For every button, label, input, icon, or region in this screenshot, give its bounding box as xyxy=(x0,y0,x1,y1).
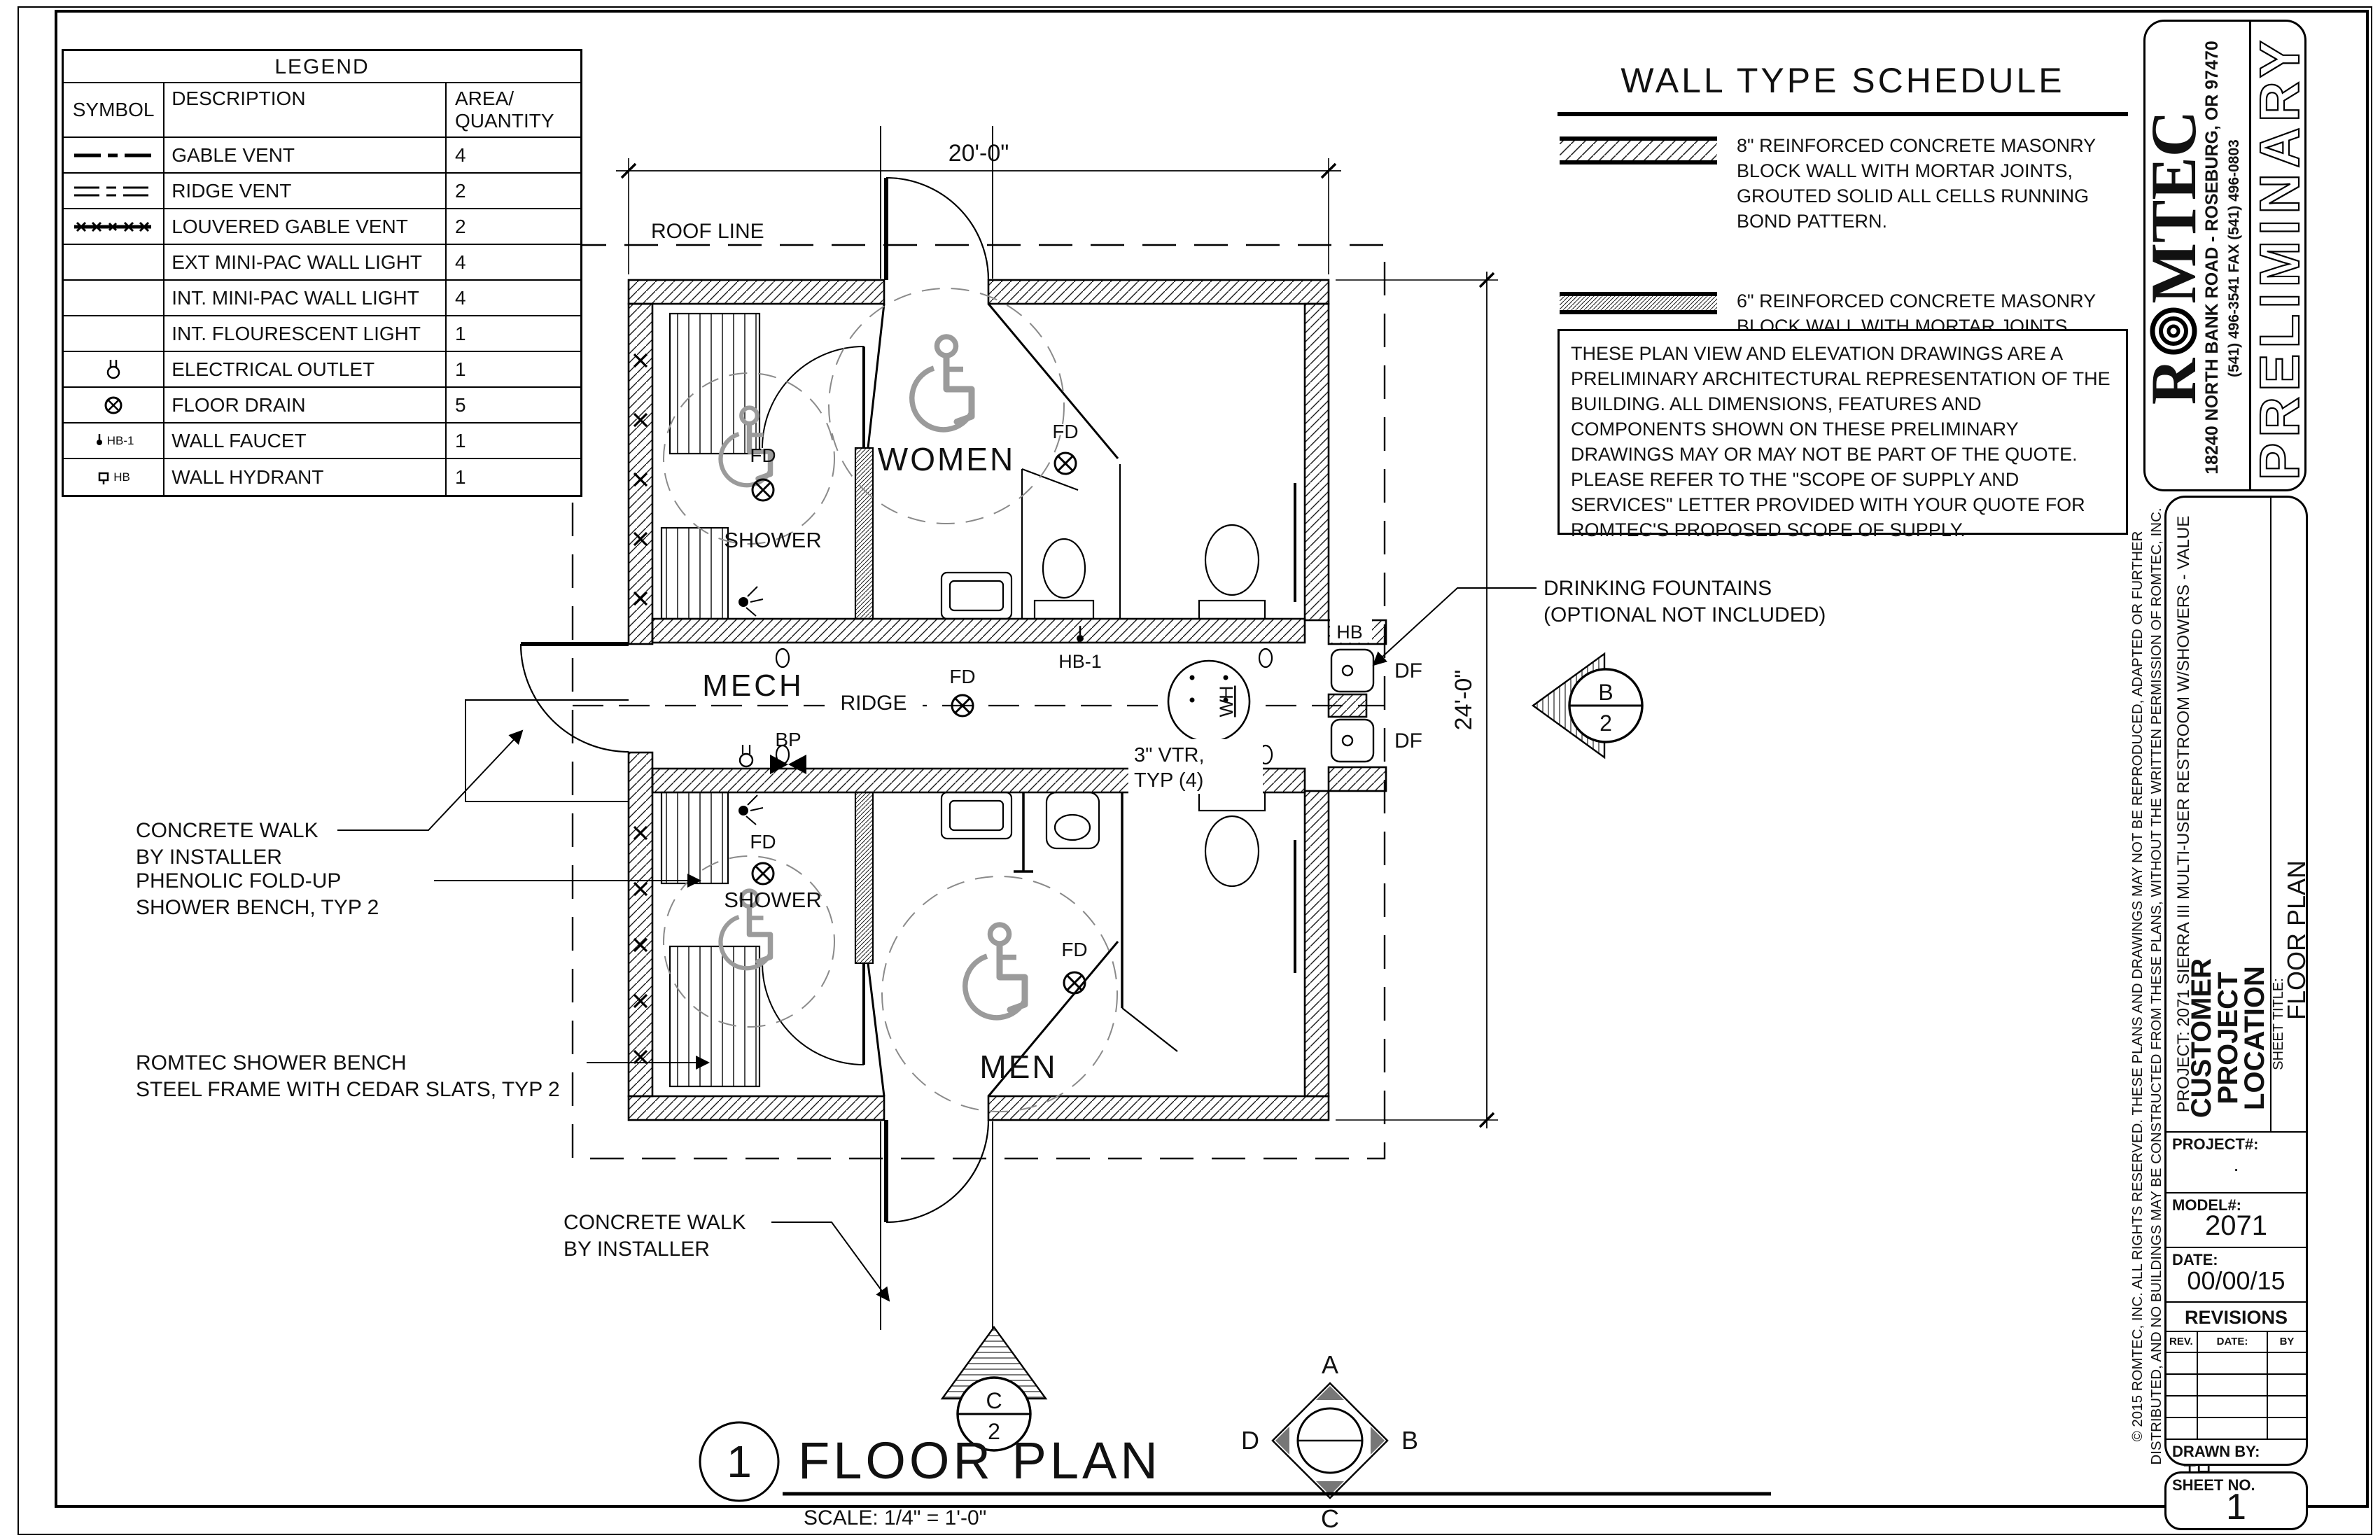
wheelchair-icon xyxy=(965,925,1025,1018)
callout-drinking-fountains: DRINKING FOUNTAINS (OPTIONAL NOT INCLUDE… xyxy=(1373,577,1826,665)
svg-text:1: 1 xyxy=(727,1436,752,1487)
legend-header-row: SYMBOL DESCRIPTION AREA/QUANTITY xyxy=(64,83,580,138)
revision-row-empty xyxy=(2166,1395,2306,1417)
df-label-2: DF xyxy=(1394,729,1422,752)
callout-concrete-walk-bottom: CONCRETE WALK BY INSTALLER xyxy=(563,1211,889,1301)
legend-row-floor-drain: FLOOR DRAIN 5 xyxy=(64,388,580,423)
preliminary-notes: THESE PLAN VIEW AND ELEVATION DRAWINGS A… xyxy=(1557,329,2128,535)
svg-text:FD: FD xyxy=(750,444,776,466)
romtec-address: 18240 NORTH BANK ROAD - ROSEBURG, OR 974… xyxy=(2201,41,2222,475)
legend-row-gable-vent: GABLE VENT 4 xyxy=(64,138,580,174)
legend-row-louvered-gable-vent: LOUVERED GABLE VENT 2 xyxy=(64,209,580,245)
legend-row-wall-hydrant: HB WALL HYDRANT 1 xyxy=(64,459,580,495)
legend-row-ext-mini-pac: EXT MINI-PAC WALL LIGHT 4 xyxy=(64,245,580,281)
date-value: 00/00/15 xyxy=(2166,1266,2306,1296)
romtec-spiral-o-icon xyxy=(2148,305,2199,357)
legend-row-wall-faucet: HB-1 WALL FAUCET 1 xyxy=(64,423,580,459)
svg-text:C: C xyxy=(986,1388,1002,1413)
preliminary-watermark: PRELIMINARY xyxy=(2241,30,2318,485)
callout-phenolic-bench: PHENOLIC FOLD-UP SHOWER BENCH, TYP 2 xyxy=(136,869,700,919)
revisions-column-headers: REV. DATE: BY xyxy=(2166,1331,2306,1352)
romtec-phone: (541) 496-3541 FAX (541) 496-0803 xyxy=(2226,41,2243,475)
svg-text:24'-0": 24'-0" xyxy=(1450,670,1477,731)
legend-table: LEGEND SYMBOL DESCRIPTION AREA/QUANTITY … xyxy=(62,49,582,497)
svg-text:(OPTIONAL NOT INCLUDED): (OPTIONAL NOT INCLUDED) xyxy=(1543,603,1826,626)
svg-text:DRINKING FOUNTAINS: DRINKING FOUNTAINS xyxy=(1543,577,1772,600)
drawing-sheet: { "legend": { "title": "LEGEND", "header… xyxy=(0,0,2380,1540)
svg-text:20'-0": 20'-0" xyxy=(948,140,1009,167)
revision-row-empty xyxy=(2166,1373,2306,1395)
roof-line-label: ROOF LINE xyxy=(651,220,764,243)
project-no-row: PROJECT#: . xyxy=(2166,1131,2306,1192)
wheelchair-icon xyxy=(912,337,972,430)
model-value: 2071 xyxy=(2166,1210,2306,1242)
svg-text:TYP (4): TYP (4) xyxy=(1134,769,1203,792)
water-heater: WH xyxy=(1168,661,1249,742)
svg-text:D: D xyxy=(1241,1426,1259,1455)
svg-text:CONCRETE WALK: CONCRETE WALK xyxy=(136,819,318,842)
drawn-by-row: DRAWN BY: TH xyxy=(2166,1438,2306,1468)
svg-text:PHENOLIC FOLD-UP: PHENOLIC FOLD-UP xyxy=(136,869,341,892)
svg-text:SHOWER BENCH, TYP 2: SHOWER BENCH, TYP 2 xyxy=(136,896,379,919)
floor-drain-icon xyxy=(99,393,127,417)
women-fixtures xyxy=(941,464,1295,619)
legend-row-fluorescent: INT. FLOURESCENT LIGHT 1 xyxy=(64,316,580,352)
wall-faucet-icon xyxy=(93,433,106,449)
svg-text:STEEL FRAME WITH CEDAR SLATS,: STEEL FRAME WITH CEDAR SLATS, TYP 2 xyxy=(136,1078,560,1101)
revision-row-empty xyxy=(2166,1417,2306,1438)
ridge-label: RIDGE xyxy=(840,692,906,715)
svg-text:FD: FD xyxy=(750,831,776,853)
copyright-line-1: © 2015 ROMTEC, INC. ALL RIGHTS RESERVED.… xyxy=(2129,475,2147,1497)
callout-romtec-bench: ROMTEC SHOWER BENCH STEEL FRAME WITH CED… xyxy=(136,1051,708,1101)
date-row: DATE: 00/00/15 xyxy=(2166,1247,2306,1301)
6-inch-cmu-hatch-swatch xyxy=(1560,288,1717,319)
gable-vent-line-icon xyxy=(71,145,155,166)
legend-title: LEGEND xyxy=(64,51,580,83)
titleblock-logo-box: RMTEC 18240 NORTH BANK ROAD - ROSEBURG, … xyxy=(2143,20,2306,491)
svg-text:SCALE: 1/4" = 1'-0": SCALE: 1/4" = 1'-0" xyxy=(804,1506,986,1529)
svg-text:B: B xyxy=(1598,680,1613,705)
wh-label: WH xyxy=(1216,686,1237,717)
legend-header-symbol: SYMBOL xyxy=(64,83,163,136)
wall-type-schedule-title: WALL TYPE SCHEDULE xyxy=(1557,60,2128,101)
project-no-value: . xyxy=(2166,1154,2306,1176)
revision-row-empty xyxy=(2166,1352,2306,1373)
legend-row-int-mini-pac: INT. MINI-PAC WALL LIGHT 4 xyxy=(64,281,580,316)
backflow-preventer: BP xyxy=(740,729,806,774)
legend-row-ridge-vent: RIDGE VENT 2 xyxy=(64,174,580,209)
sheet-number-box: SHEET NO. 1 xyxy=(2164,1471,2308,1530)
dimension-20ft: 20'-0" xyxy=(616,140,1341,274)
ridge-vent-line-icon xyxy=(71,181,155,202)
hb-label: HB xyxy=(1336,622,1363,643)
svg-text:FD: FD xyxy=(1061,939,1087,960)
section-marker-b2: B 2 xyxy=(1533,654,1642,757)
svg-text:B: B xyxy=(1401,1426,1418,1455)
copyright-line-2: DISTRIBUTED, AND NO BUILDINGS MAY BE CON… xyxy=(2148,475,2166,1497)
drawing-title: 1 FLOOR PLAN SCALE: 1/4" = 1'-0" xyxy=(700,1422,1771,1529)
wall-type-schedule-rule xyxy=(1557,112,2128,116)
titleblock-project-box: PROJECT: 2071 SIERRA III MULTI-USER REST… xyxy=(2164,496,2308,1466)
vtr-note: 3" VTR, TYP (4) xyxy=(1128,739,1263,794)
svg-text:FD: FD xyxy=(949,666,975,687)
svg-text:BY INSTALLER: BY INSTALLER xyxy=(136,846,282,869)
ridge-line: RIDGE xyxy=(573,689,1385,715)
room-label-mech: MECH xyxy=(702,668,804,703)
wall-hydrant-icon xyxy=(97,469,112,486)
romtec-logo: RMTEC xyxy=(2138,48,2208,468)
room-label-women: WOMEN xyxy=(878,441,1015,477)
svg-text:FLOOR PLAN: FLOOR PLAN xyxy=(798,1431,1161,1490)
df-label-1: DF xyxy=(1394,659,1422,682)
svg-text:3" VTR,: 3" VTR, xyxy=(1134,744,1205,766)
wall-type-8in: 8" REINFORCED CONCRETE MASONRY BLOCK WAL… xyxy=(1560,133,2130,234)
svg-text:BY INSTALLER: BY INSTALLER xyxy=(563,1238,710,1261)
svg-text:A: A xyxy=(1322,1350,1338,1379)
room-label-shower-men: SHOWER xyxy=(724,888,822,912)
electrical-outlet-icon xyxy=(99,357,127,382)
legend-header-area: AREA/QUANTITY xyxy=(447,83,580,136)
sheet-title-value: FLOOR PLAN xyxy=(2283,835,2311,1045)
legend-header-description: DESCRIPTION xyxy=(163,83,447,136)
legend-row-electrical-outlet: ELECTRICAL OUTLET 1 xyxy=(64,352,580,388)
svg-text:FD: FD xyxy=(1052,421,1078,442)
svg-text:2: 2 xyxy=(1599,710,1612,736)
room-label-shower-women: SHOWER xyxy=(724,528,822,552)
svg-text:BP: BP xyxy=(775,729,801,750)
svg-text:C: C xyxy=(1321,1504,1339,1533)
room-label-men: MEN xyxy=(979,1049,1057,1085)
model-row: MODEL#: 2071 xyxy=(2166,1192,2306,1247)
louvered-gable-vent-line-icon xyxy=(71,216,155,237)
revisions-header: REVISIONS xyxy=(2166,1301,2306,1331)
men-fixtures xyxy=(941,792,1295,1051)
svg-text:HB-1: HB-1 xyxy=(1058,651,1102,672)
callout-concrete-walk-left: CONCRETE WALK BY INSTALLER xyxy=(136,731,522,869)
svg-text:CONCRETE WALK: CONCRETE WALK xyxy=(563,1211,746,1234)
8-inch-cmu-hatch-swatch xyxy=(1560,133,1717,168)
svg-text:ROMTEC SHOWER BENCH: ROMTEC SHOWER BENCH xyxy=(136,1051,407,1074)
